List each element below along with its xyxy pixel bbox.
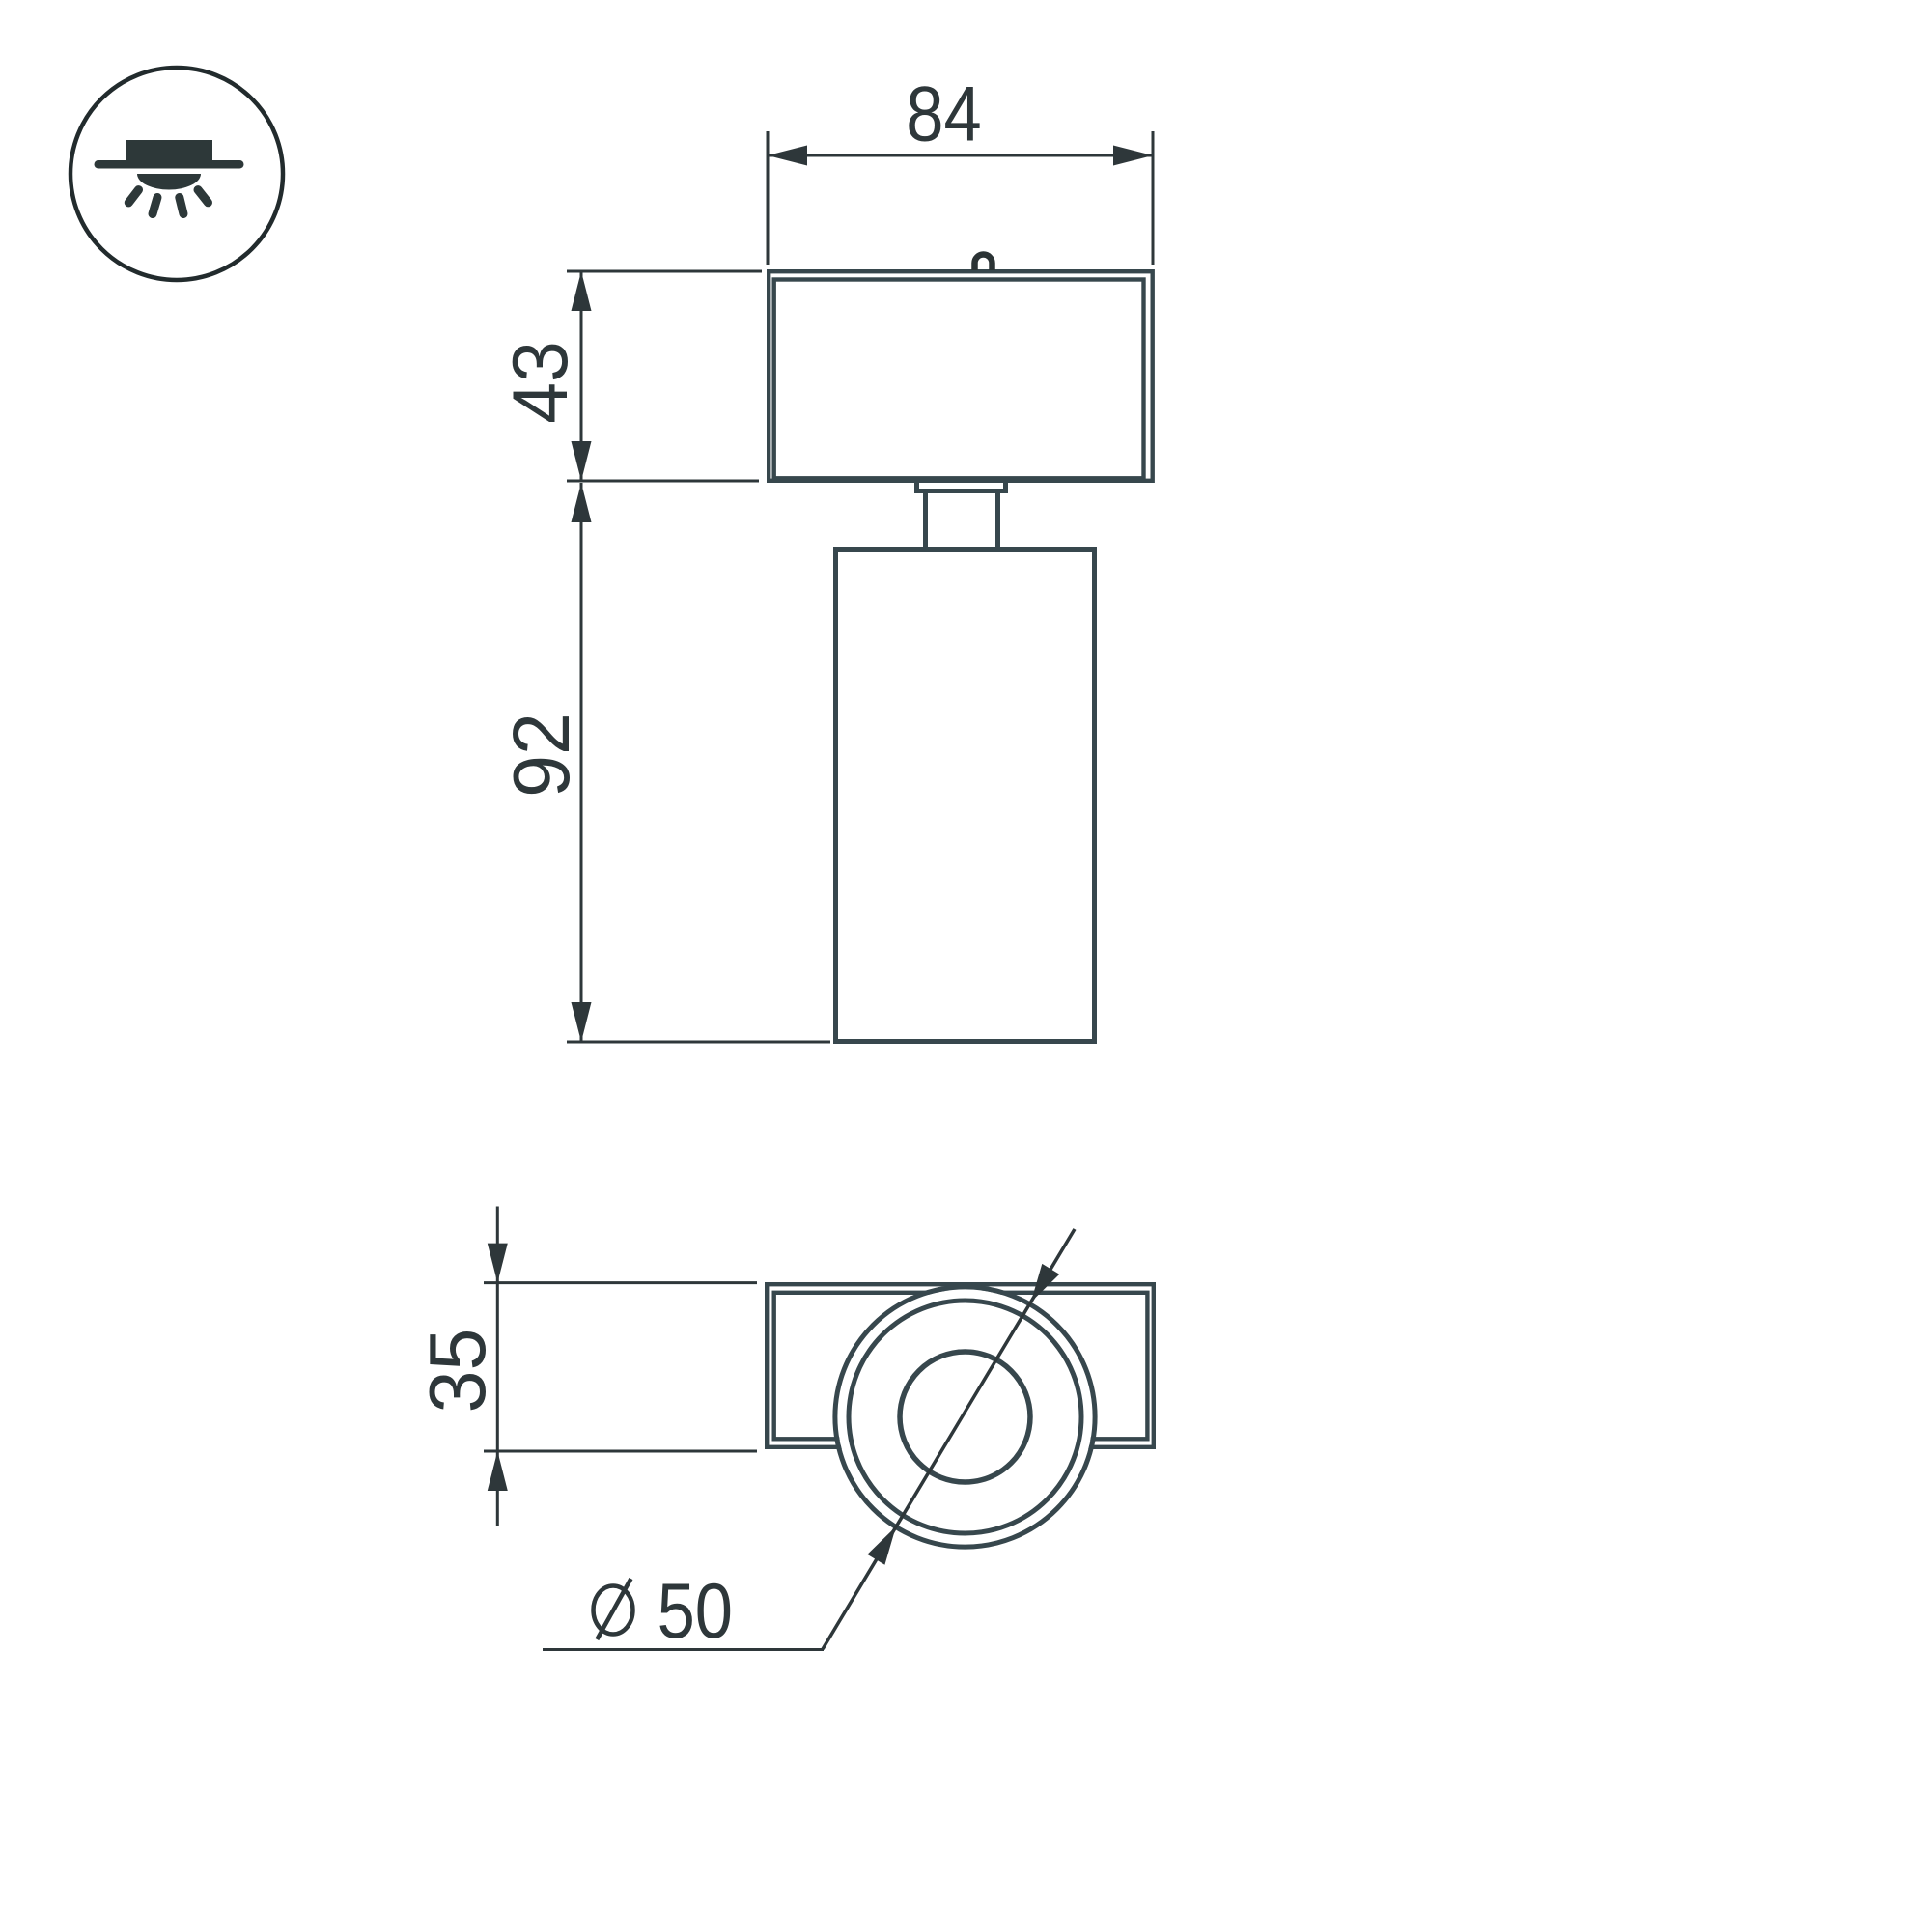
svg-text:35: 35 xyxy=(413,1329,502,1414)
svg-text:43: 43 xyxy=(495,341,583,424)
svg-text:92: 92 xyxy=(497,713,586,798)
svg-text:84: 84 xyxy=(906,70,981,158)
svg-text:50: 50 xyxy=(658,1567,733,1655)
